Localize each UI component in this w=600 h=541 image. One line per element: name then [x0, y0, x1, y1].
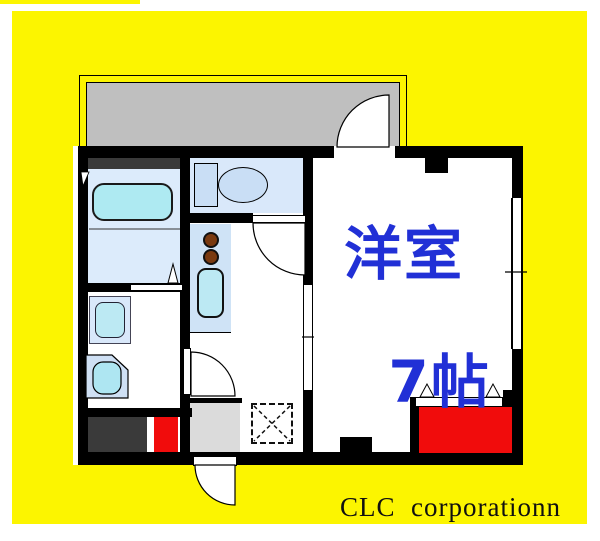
washroom-door-leaf: [183, 348, 191, 395]
entrance-door-threshold: [193, 456, 237, 466]
wall-top: [79, 146, 523, 158]
toilet-bowl: [218, 167, 268, 203]
balcony-door-threshold: [334, 146, 395, 158]
balcony: [86, 82, 400, 148]
bath-sliding-door: [130, 284, 183, 291]
yellow-mat-top-sliver: [0, 0, 140, 4]
mainroom-window: [511, 198, 523, 349]
wall-entrance-top: [189, 398, 242, 403]
stove-burner-2: [203, 249, 219, 265]
main-room-label-line1: 洋室: [344, 220, 464, 288]
company-name: CLC corporationn: [340, 492, 561, 523]
shoe-cabinet-dashed-box: [251, 403, 293, 444]
stove-burner-1: [203, 232, 219, 248]
pillar-top: [425, 158, 448, 173]
main-room-label: 洋室 7帖: [344, 222, 504, 414]
mainroom-sliding-door: [303, 285, 313, 390]
main-room-label-line2: 7帖: [388, 348, 490, 416]
washing-machine: [95, 302, 125, 338]
bathtub: [92, 183, 173, 221]
wall-toilet-bottom: [188, 213, 253, 223]
pillar-bottom: [340, 437, 372, 453]
wall-left: [78, 146, 88, 465]
entrance-genkan: [189, 403, 240, 452]
toilet-door-leaf: [252, 215, 306, 223]
dark-cabinet: [85, 417, 147, 452]
toilet-tank: [194, 163, 218, 207]
wall-washroom-bottom: [78, 408, 192, 417]
red-marker-small: [154, 417, 178, 452]
wall-bottom: [78, 452, 523, 465]
floorplan-canvas: 洋室 7帖 CLC corporationn: [0, 0, 600, 541]
kitchen-sink: [197, 268, 224, 318]
